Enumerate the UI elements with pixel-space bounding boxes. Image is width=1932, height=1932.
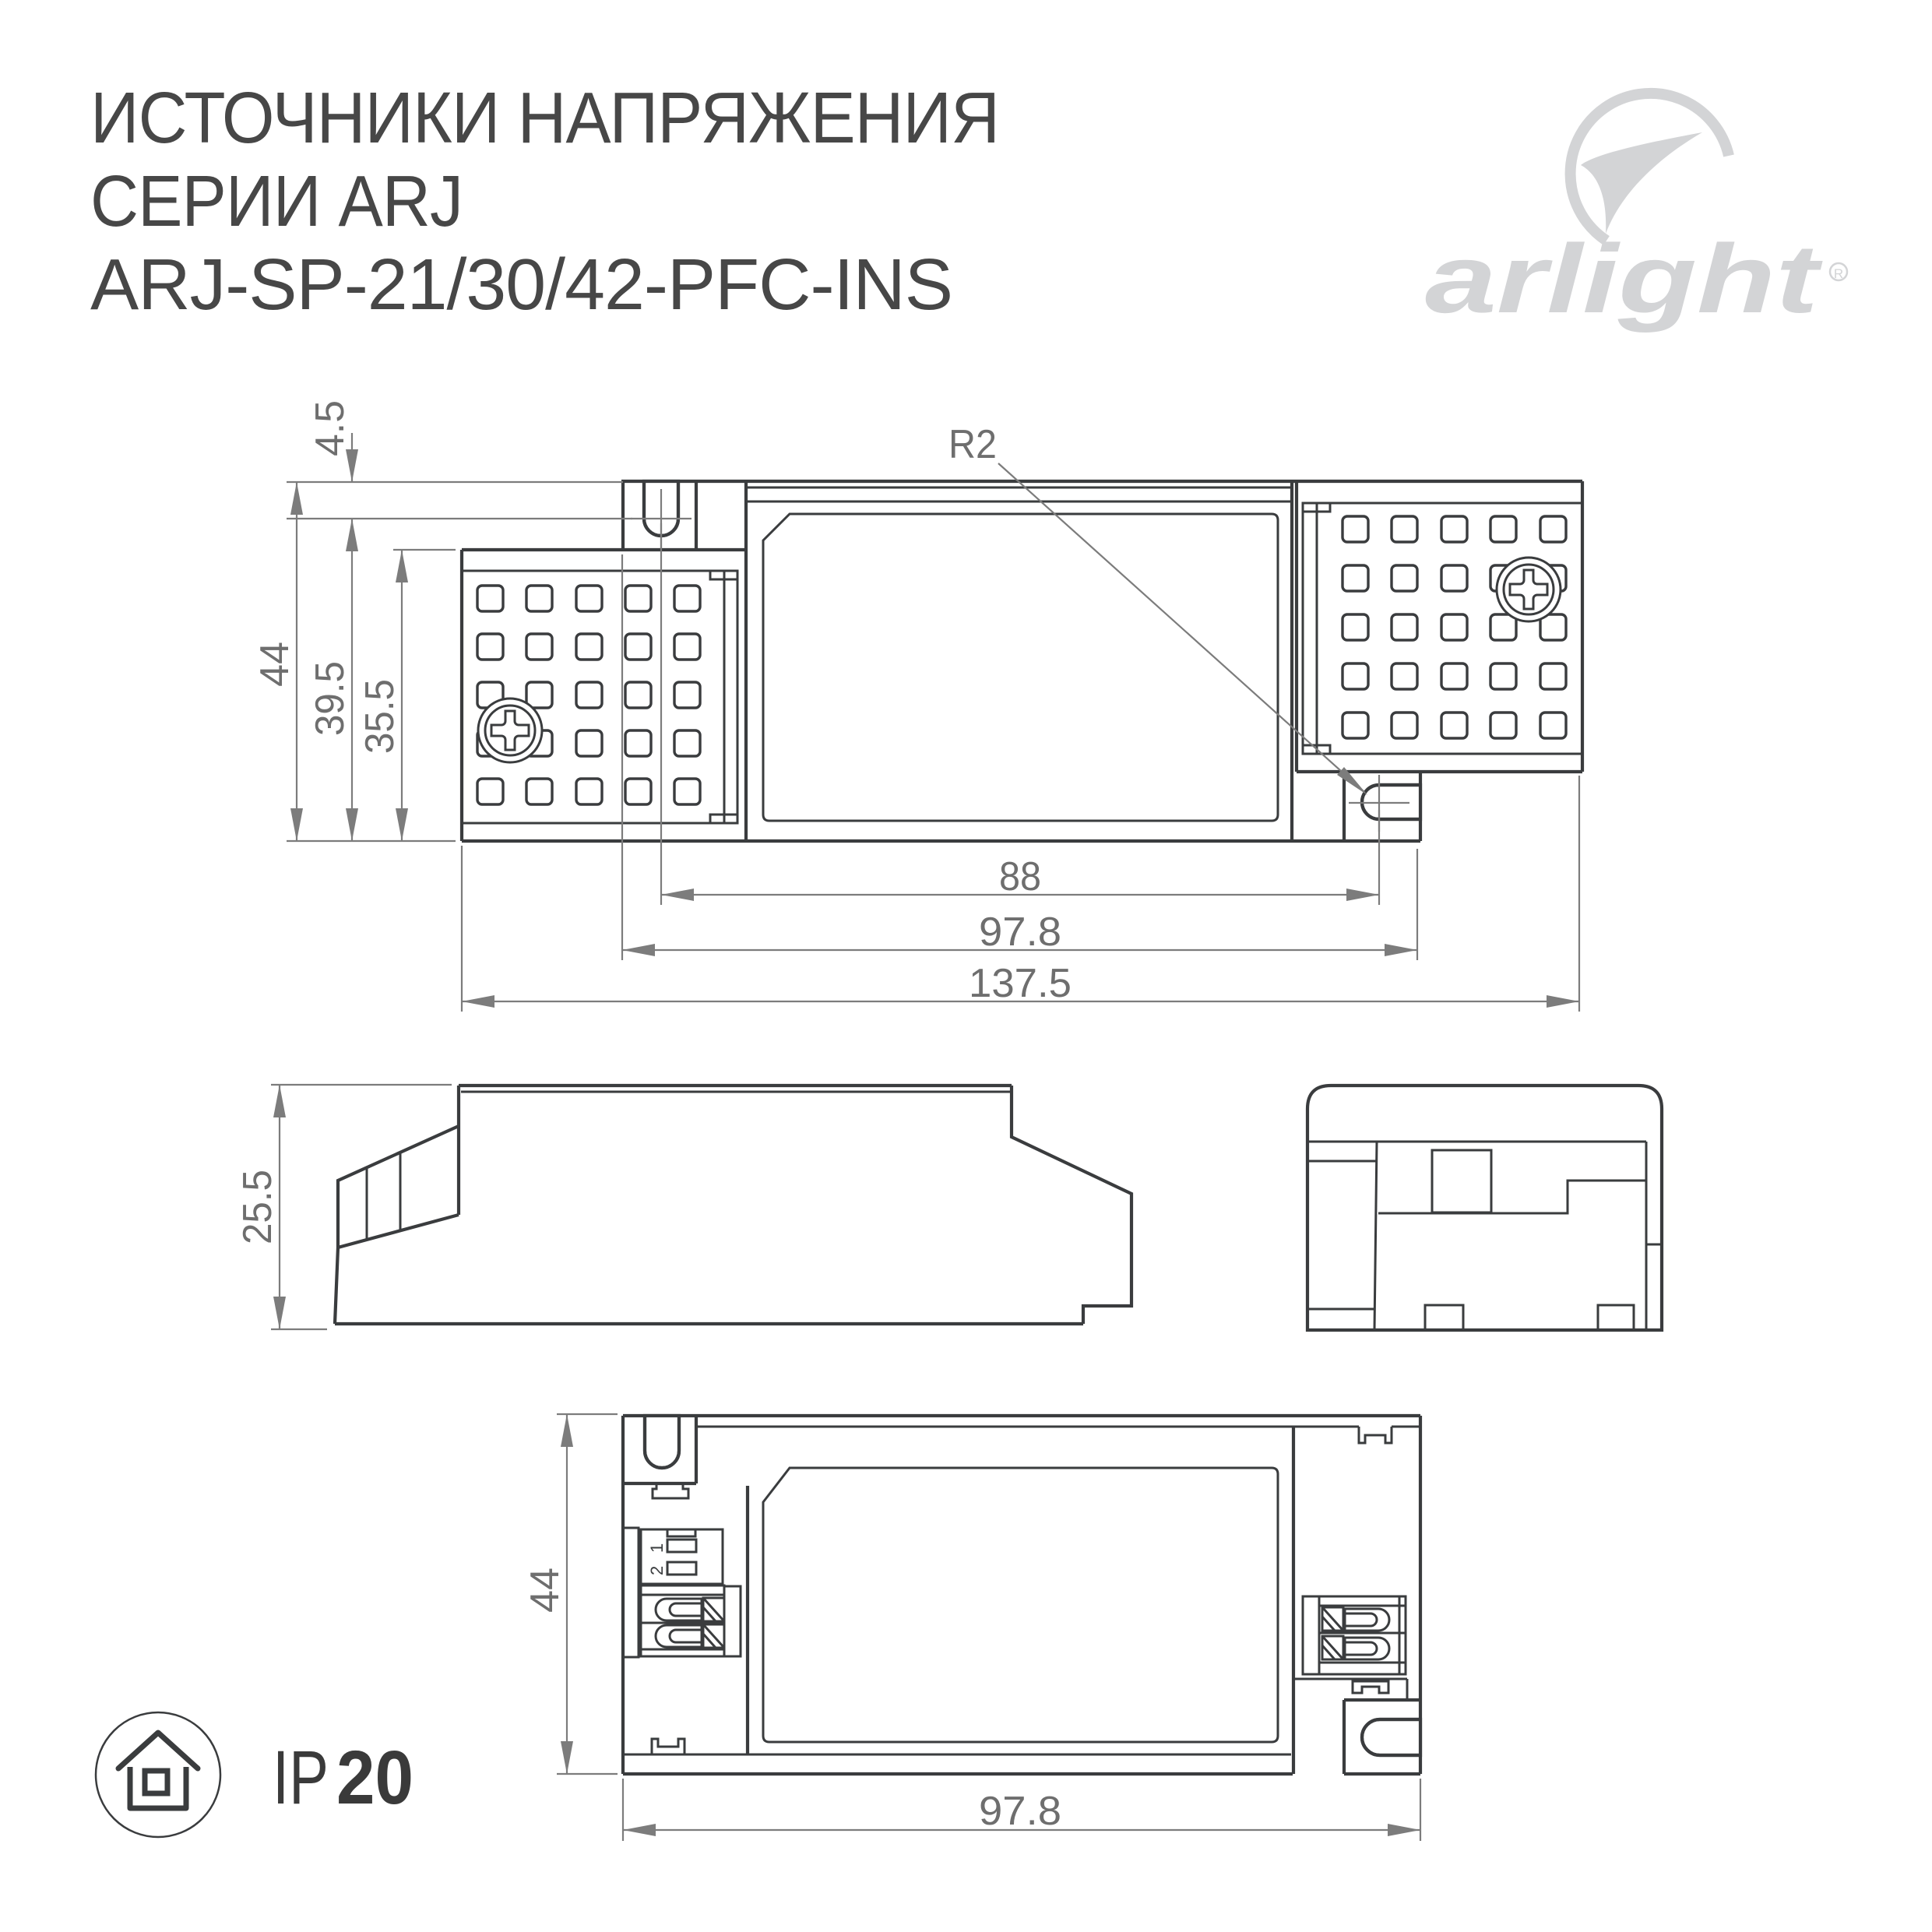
svg-text:39.5: 39.5 bbox=[308, 661, 353, 736]
svg-text:25.5: 25.5 bbox=[235, 1170, 280, 1244]
svg-text:97.8: 97.8 bbox=[979, 1789, 1061, 1834]
svg-text:ИСТОЧНИКИ НАПРЯЖЕНИЯ: ИСТОЧНИКИ НАПРЯЖЕНИЯ bbox=[90, 77, 999, 158]
svg-text:IP: IP bbox=[273, 1735, 329, 1820]
svg-text:44: 44 bbox=[523, 1568, 568, 1613]
svg-text:R: R bbox=[1834, 266, 1843, 281]
svg-text:35.5: 35.5 bbox=[357, 679, 403, 754]
svg-text:arlight: arlight bbox=[1425, 225, 1823, 333]
svg-text:2: 2 bbox=[647, 1566, 667, 1575]
svg-text:20: 20 bbox=[336, 1735, 413, 1820]
svg-text:88: 88 bbox=[999, 854, 1041, 899]
svg-text:137.5: 137.5 bbox=[969, 961, 1072, 1006]
svg-text:4.5: 4.5 bbox=[308, 400, 353, 456]
svg-text:СЕРИИ ARJ: СЕРИИ ARJ bbox=[90, 160, 463, 241]
svg-text:ARJ-SP-21/30/42-PFC-INS: ARJ-SP-21/30/42-PFC-INS bbox=[90, 244, 952, 325]
svg-text:1: 1 bbox=[647, 1543, 667, 1553]
svg-text:R2: R2 bbox=[948, 422, 997, 467]
svg-text:44: 44 bbox=[252, 642, 297, 687]
svg-text:97.8: 97.8 bbox=[979, 910, 1061, 955]
